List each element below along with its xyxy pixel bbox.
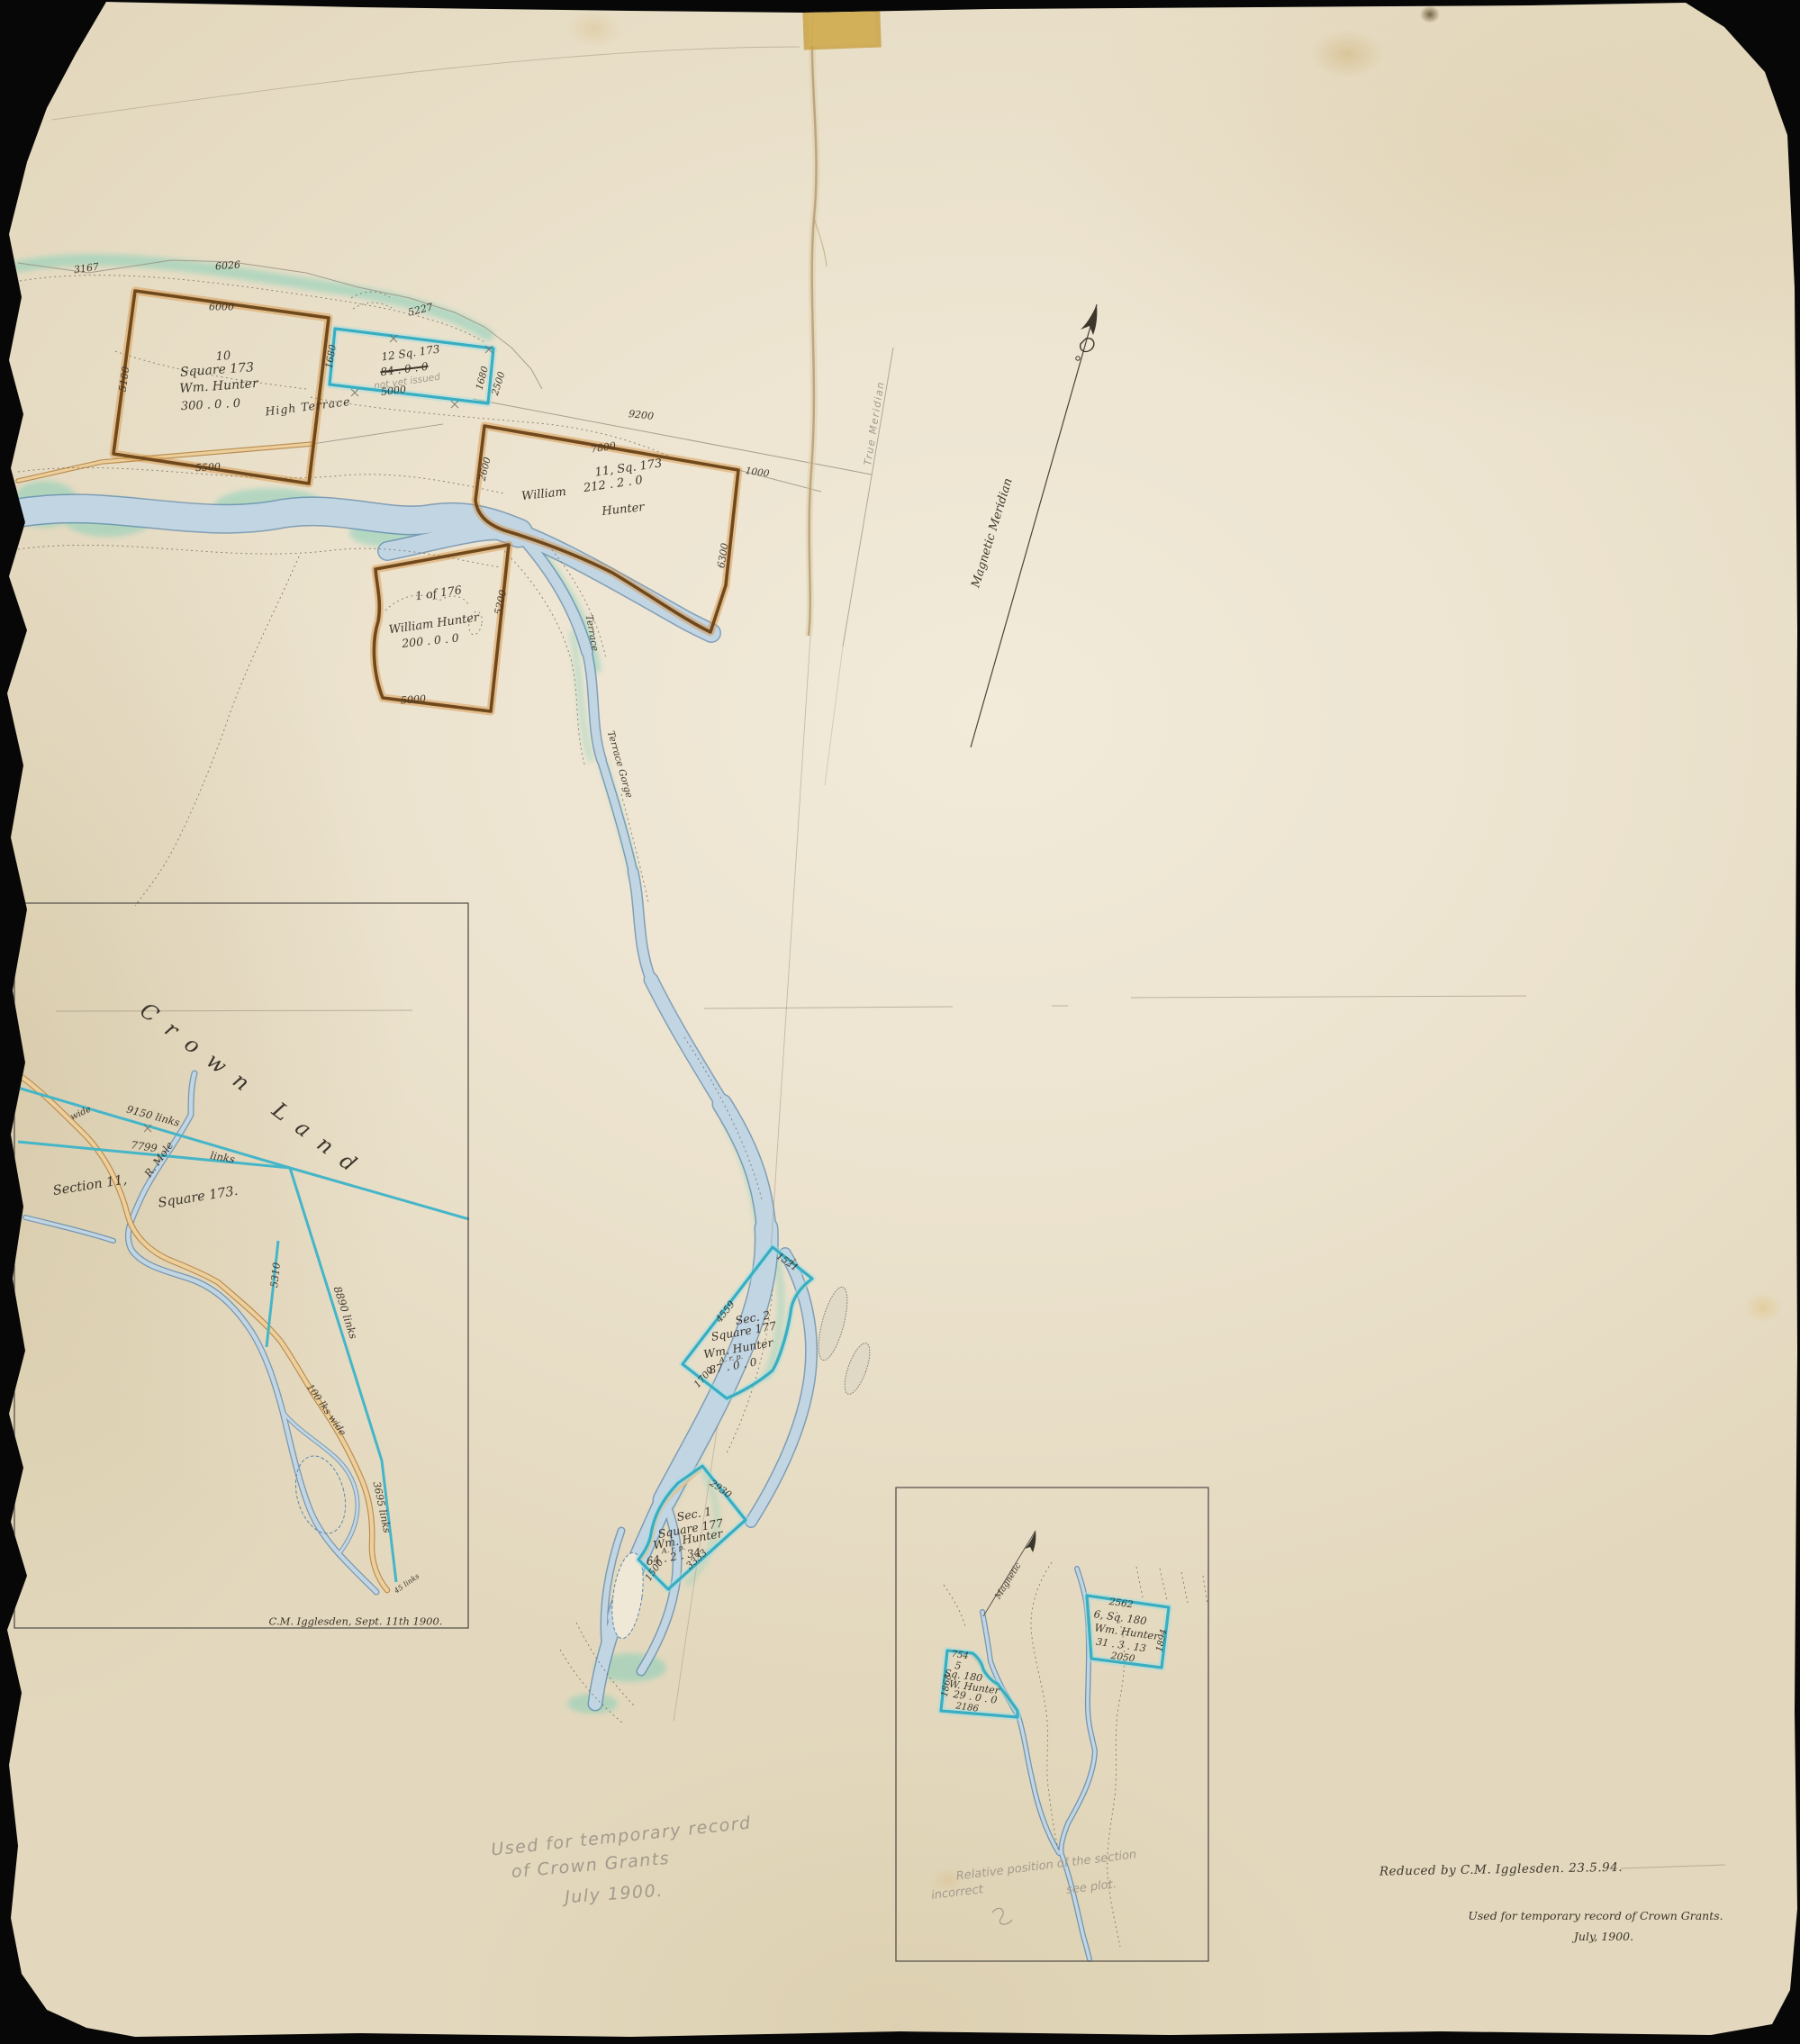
parcel176-dim-bottom: 5000	[401, 694, 427, 706]
parcel10-dim-bottom: 5500	[195, 462, 222, 473]
parcel10-area: 300 . 0 . 0	[181, 398, 241, 412]
survey-lines	[18, 47, 1725, 1868]
inset1-signature: C.M. Igglesden, Sept. 11th 1900.	[269, 1616, 443, 1627]
pencil-initials-squiggle	[992, 1908, 1012, 1924]
parcel12-dim-bottom: 5000	[381, 384, 407, 397]
meridian-arrow-icon	[1025, 304, 1097, 1552]
tape-stain	[802, 0, 882, 50]
ridge-number-6026: 6026	[215, 260, 241, 272]
paper-tear	[809, 13, 827, 636]
map-artwork	[0, 0, 1800, 2044]
river-network	[16, 509, 1095, 1959]
parcel10-dim-top: 6000	[209, 303, 234, 312]
roads	[18, 424, 1091, 1709]
parcel11-dim-survey: 9200	[629, 409, 655, 421]
parcel10-number: 10	[215, 350, 231, 363]
map-paper-sheet: 3167 6026 5227 10 Square 173 Wm. Hunter …	[0, 0, 1800, 2044]
inset1-dim-5310: 5310	[269, 1262, 282, 1289]
ink-note-date: July, 1900.	[1574, 1931, 1633, 1943]
scanned-survey-map: 3167 6026 5227 10 Square 173 Wm. Hunter …	[0, 0, 1800, 2044]
ink-note-temporary-record: Used for temporary record of Crown Grant…	[1468, 1911, 1723, 1922]
